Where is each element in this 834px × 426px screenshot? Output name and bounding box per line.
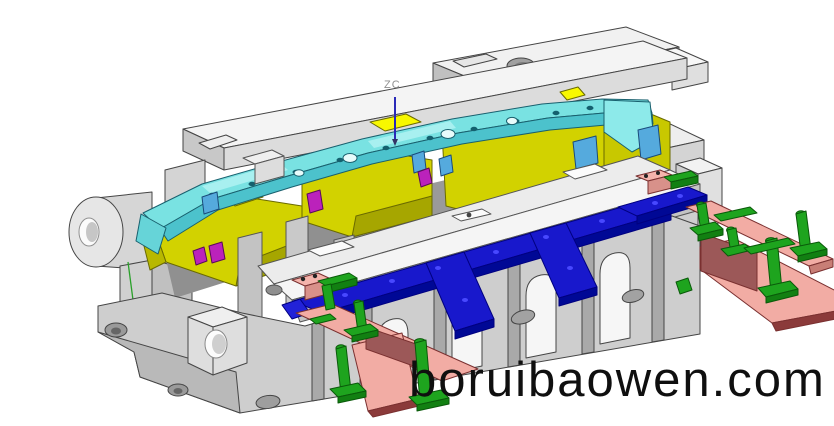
magenta-insert xyxy=(418,168,432,187)
zc-axis-label: ZC xyxy=(384,80,401,91)
panel-big-hole xyxy=(441,130,455,139)
magenta-insert xyxy=(209,242,225,263)
shelf-hole xyxy=(266,285,282,295)
latch-screw xyxy=(644,174,648,178)
latch-screw xyxy=(313,274,317,278)
panel-big-hole xyxy=(343,154,357,163)
counterbore-hole-inner xyxy=(174,388,183,394)
latch-screw xyxy=(301,277,305,281)
lifter-block xyxy=(439,155,453,176)
lifter-block xyxy=(638,125,661,160)
pillar xyxy=(238,232,262,324)
panel-big-hole xyxy=(507,117,518,124)
watermark-text: boruibaowen.com xyxy=(409,356,826,405)
rib xyxy=(652,218,664,342)
panel-big-hole xyxy=(294,170,304,176)
cad-viewport: ZC boruibaowen.com xyxy=(0,0,834,426)
counterbore-hole-inner xyxy=(111,328,121,335)
tab-hole xyxy=(467,213,472,218)
magenta-insert xyxy=(307,190,323,213)
rib xyxy=(312,320,324,401)
latch-screw xyxy=(656,171,660,175)
guide-boss-hole-shade xyxy=(212,334,226,354)
boss-hole-shade xyxy=(86,222,98,242)
